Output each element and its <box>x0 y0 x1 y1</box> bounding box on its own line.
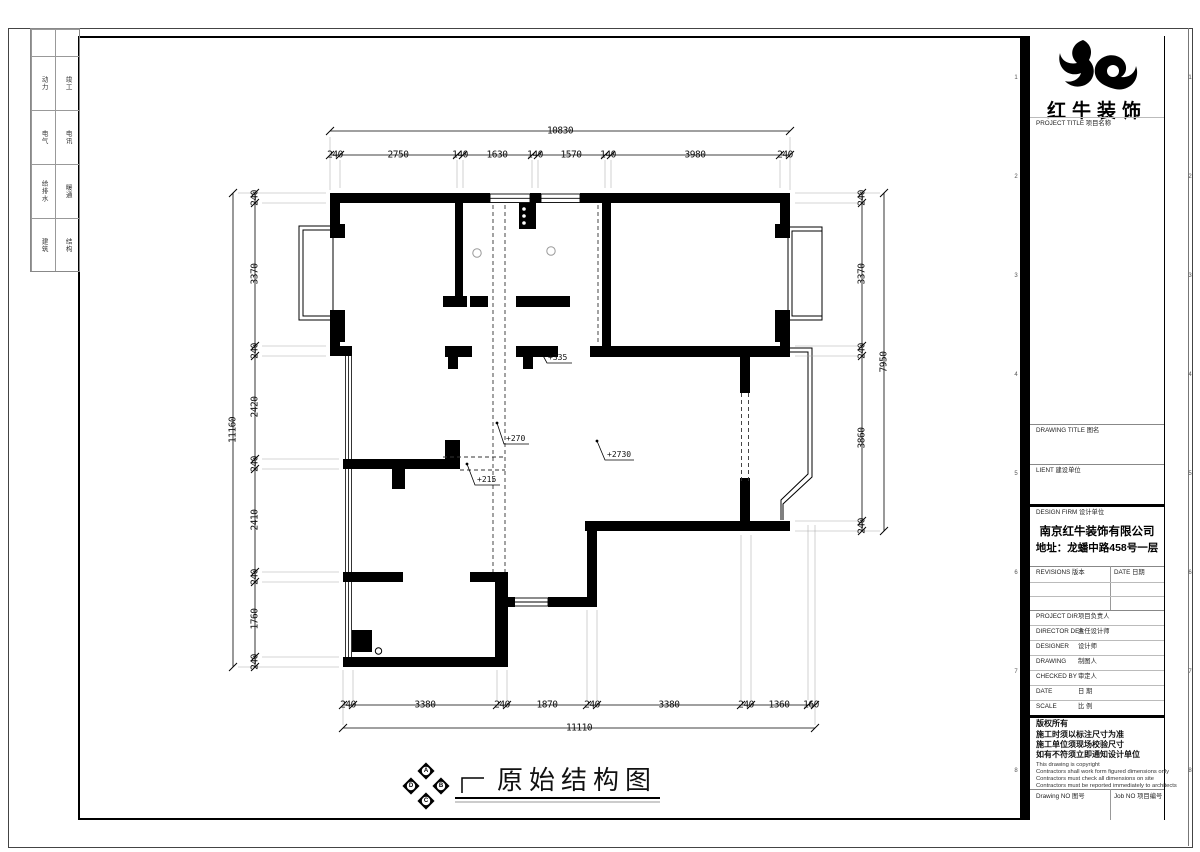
dim-label: 140 <box>452 150 468 160</box>
dim-label: 2410 <box>250 510 260 531</box>
dim-label: 240 <box>857 190 867 206</box>
dim-label: 1570 <box>561 150 582 160</box>
divider <box>1030 582 1164 583</box>
compass-letter-e: B <box>439 783 443 789</box>
row-zh: 主任设计师 <box>1078 629 1109 635</box>
dim-label: 240 <box>250 343 260 359</box>
row-zh: 比 例 <box>1078 704 1092 710</box>
drawing-title-label: DRAWING TITLE 图名 <box>1036 428 1099 434</box>
level-label: +270 <box>506 435 525 443</box>
row-en: DESIGNER <box>1036 644 1069 650</box>
grid-ref: 2 <box>1188 174 1191 180</box>
dim-label: 240 <box>250 654 260 670</box>
divider <box>1030 655 1164 656</box>
grid-ref: 4 <box>1014 372 1017 378</box>
row-en: SCALE <box>1036 704 1057 710</box>
dim-label: 140 <box>600 150 616 160</box>
copyright-line-zh: 施工时须以标注尺寸为准 <box>1036 731 1124 739</box>
brand-name: 红牛装饰 <box>1030 96 1164 123</box>
dim-total-left: 11160 <box>228 417 238 443</box>
dim-label: 1870 <box>537 700 558 710</box>
drain-circle <box>547 247 555 255</box>
shaft-vent-dot <box>522 214 526 218</box>
dim-label: 1630 <box>487 150 508 160</box>
compass-letter-n: A <box>424 768 428 774</box>
window-symbols <box>490 194 580 606</box>
dim-total-bottom: 11110 <box>566 723 592 733</box>
divider <box>1030 670 1164 671</box>
dim-label: 160 <box>803 700 819 710</box>
floor-plan-canvas <box>0 0 1200 852</box>
dim-label: 240 <box>584 700 600 710</box>
dim-label: 240 <box>250 569 260 585</box>
dim-label: 240 <box>738 700 754 710</box>
row-zh: 设计师 <box>1078 644 1097 650</box>
divider <box>1030 700 1164 701</box>
walls <box>330 193 790 667</box>
copyright-title: 版权所有 <box>1036 720 1068 728</box>
grid-ref: 5 <box>1188 471 1191 477</box>
row-en: CHECKED BY <box>1036 674 1077 680</box>
revisions-label: REVISIONS 版本 <box>1036 570 1085 576</box>
design-firm-label: DESIGN FIRM 设计单位 <box>1036 510 1104 516</box>
drain-circle <box>473 249 481 257</box>
shaft-vent-dot <box>522 221 526 225</box>
grid-ref: 3 <box>1188 273 1191 279</box>
dim-label: 240 <box>250 456 260 472</box>
copyright-line-en: Contractors shall work form figured dime… <box>1036 770 1169 776</box>
divider <box>1030 789 1164 790</box>
dim-label: 3980 <box>685 150 706 160</box>
grid-ref: 1 <box>1188 75 1191 81</box>
drawing-no-divider <box>1110 789 1111 820</box>
revisions-divider <box>1110 566 1111 610</box>
project-title-label: PROJECT TITLE 项目名称 <box>1036 121 1111 127</box>
dim-label: 240 <box>250 190 260 206</box>
firm-name: 南京红牛装饰有限公司 <box>1030 523 1164 539</box>
divider <box>1030 464 1164 465</box>
grid-ref: 8 <box>1188 768 1191 774</box>
row-en: DRAWING <box>1036 659 1066 665</box>
level-label: +335 <box>548 354 567 362</box>
copyright-line-en: This drawing is copyright <box>1036 763 1100 769</box>
dim-label: 240 <box>777 150 793 160</box>
row-zh: 制图人 <box>1078 659 1097 665</box>
grid-ref: 6 <box>1014 570 1017 576</box>
dim-total-top: 10830 <box>547 126 573 136</box>
dim-label: 2420 <box>250 397 260 418</box>
row-en: DIRECTOR DER <box>1036 629 1084 635</box>
dim-label: 1760 <box>250 609 260 630</box>
divider <box>1030 596 1164 597</box>
divider-thick <box>1030 504 1164 507</box>
firm-address: 地址：龙蟠中路458号一层 <box>1030 540 1164 555</box>
divider-thick <box>1030 715 1164 718</box>
copyright-line-en: Contractors must check all dimensions on… <box>1036 777 1154 783</box>
row-en: DATE <box>1036 689 1052 695</box>
grid-ref: 5 <box>1014 471 1017 477</box>
dim-label: 140 <box>527 150 543 160</box>
title-block: 红牛装饰 PROJECT TITLE 项目名称 DRAWING TITLE 图名… <box>1030 36 1165 820</box>
copyright-line-zh: 施工单位须现场校验尺寸 <box>1036 741 1124 749</box>
compass-letter-w: D <box>409 783 413 789</box>
logo-horn-left <box>1059 40 1094 87</box>
row-zh: 日 期 <box>1078 689 1092 695</box>
dim-label: 240 <box>340 700 356 710</box>
fixtures <box>375 207 555 654</box>
grid-ref: 4 <box>1188 372 1191 378</box>
grid-ref: 1 <box>1014 75 1017 81</box>
grid-ref: 3 <box>1014 273 1017 279</box>
row-en: PROJECT DIR <box>1036 614 1078 620</box>
grid-ref: 7 <box>1188 669 1191 675</box>
divider <box>1030 685 1164 686</box>
shaft-vent-dot <box>522 207 526 211</box>
dim-label: 3380 <box>659 700 680 710</box>
divider <box>1030 625 1164 626</box>
drawing-no-label: Drawing NO 图号 <box>1036 794 1085 800</box>
divider <box>1030 566 1164 567</box>
job-no-label: Job NO 项目编号 <box>1114 794 1162 800</box>
dim-label: 240 <box>857 343 867 359</box>
dashed-lines <box>443 205 749 572</box>
copyright-line-zh: 如有不符须立即通知设计单位 <box>1036 751 1140 759</box>
dim-label: 240 <box>327 150 343 160</box>
dim-total-right: 7950 <box>879 352 889 373</box>
date-col-label: DATE 日期 <box>1114 570 1145 576</box>
glass-wall <box>346 356 352 657</box>
grid-ref: 7 <box>1014 669 1017 675</box>
dim-label: 3370 <box>250 264 260 285</box>
drawing-sheet: 动力 竣工 电气 电讯 给排水 暖通 建筑 结构 <box>0 0 1200 852</box>
plan-title: 原始结构图 <box>497 768 657 794</box>
level-leaders <box>466 349 634 485</box>
grid-ref: 6 <box>1188 570 1191 576</box>
grid-ref: 8 <box>1014 768 1017 774</box>
divider <box>1030 640 1164 641</box>
level-label: +215 <box>477 476 496 484</box>
dim-label: 3380 <box>415 700 436 710</box>
level-label: +2730 <box>607 451 631 459</box>
compass-letter-s: C <box>424 798 428 804</box>
grid-ref: 2 <box>1014 174 1017 180</box>
row-zh: 审定人 <box>1078 674 1097 680</box>
dim-label: 2750 <box>388 150 409 160</box>
dim-label: 240 <box>494 700 510 710</box>
flue-circle <box>375 648 381 654</box>
dim-label: 240 <box>857 518 867 534</box>
dim-label: 1360 <box>769 700 790 710</box>
brand-logo <box>1042 38 1152 98</box>
client-label: LIENT 建设单位 <box>1036 468 1081 474</box>
title-corner-mark <box>462 778 484 793</box>
row-zh: 项目负责人 <box>1078 614 1109 620</box>
dim-label: 3860 <box>857 428 867 449</box>
divider <box>1030 424 1164 425</box>
dim-label: 3370 <box>857 264 867 285</box>
divider <box>1030 610 1164 611</box>
divider <box>1030 117 1164 118</box>
